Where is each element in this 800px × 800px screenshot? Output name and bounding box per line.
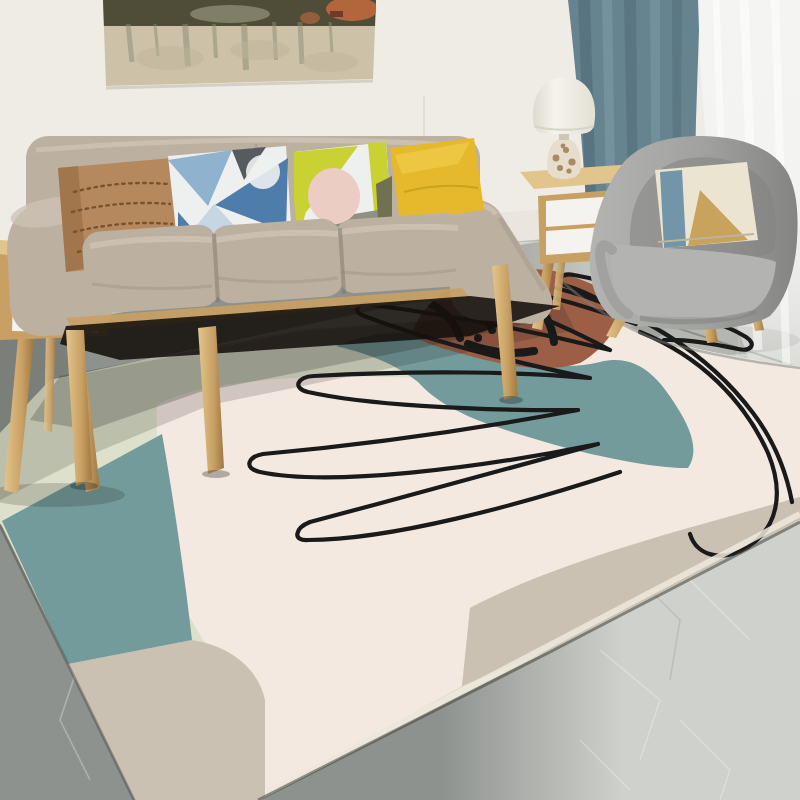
leg-shadow: [202, 470, 230, 478]
armchair: [590, 136, 798, 343]
pillow-yellow: [390, 138, 484, 222]
wall-art-painting: [100, 0, 380, 88]
leg-shadow: [70, 482, 98, 490]
leg-shadow: [499, 396, 523, 404]
screenshot-root: [0, 0, 800, 800]
living-room-scene: [0, 0, 800, 800]
armchair-pillow: [655, 162, 758, 248]
painting-boat: [330, 11, 343, 17]
